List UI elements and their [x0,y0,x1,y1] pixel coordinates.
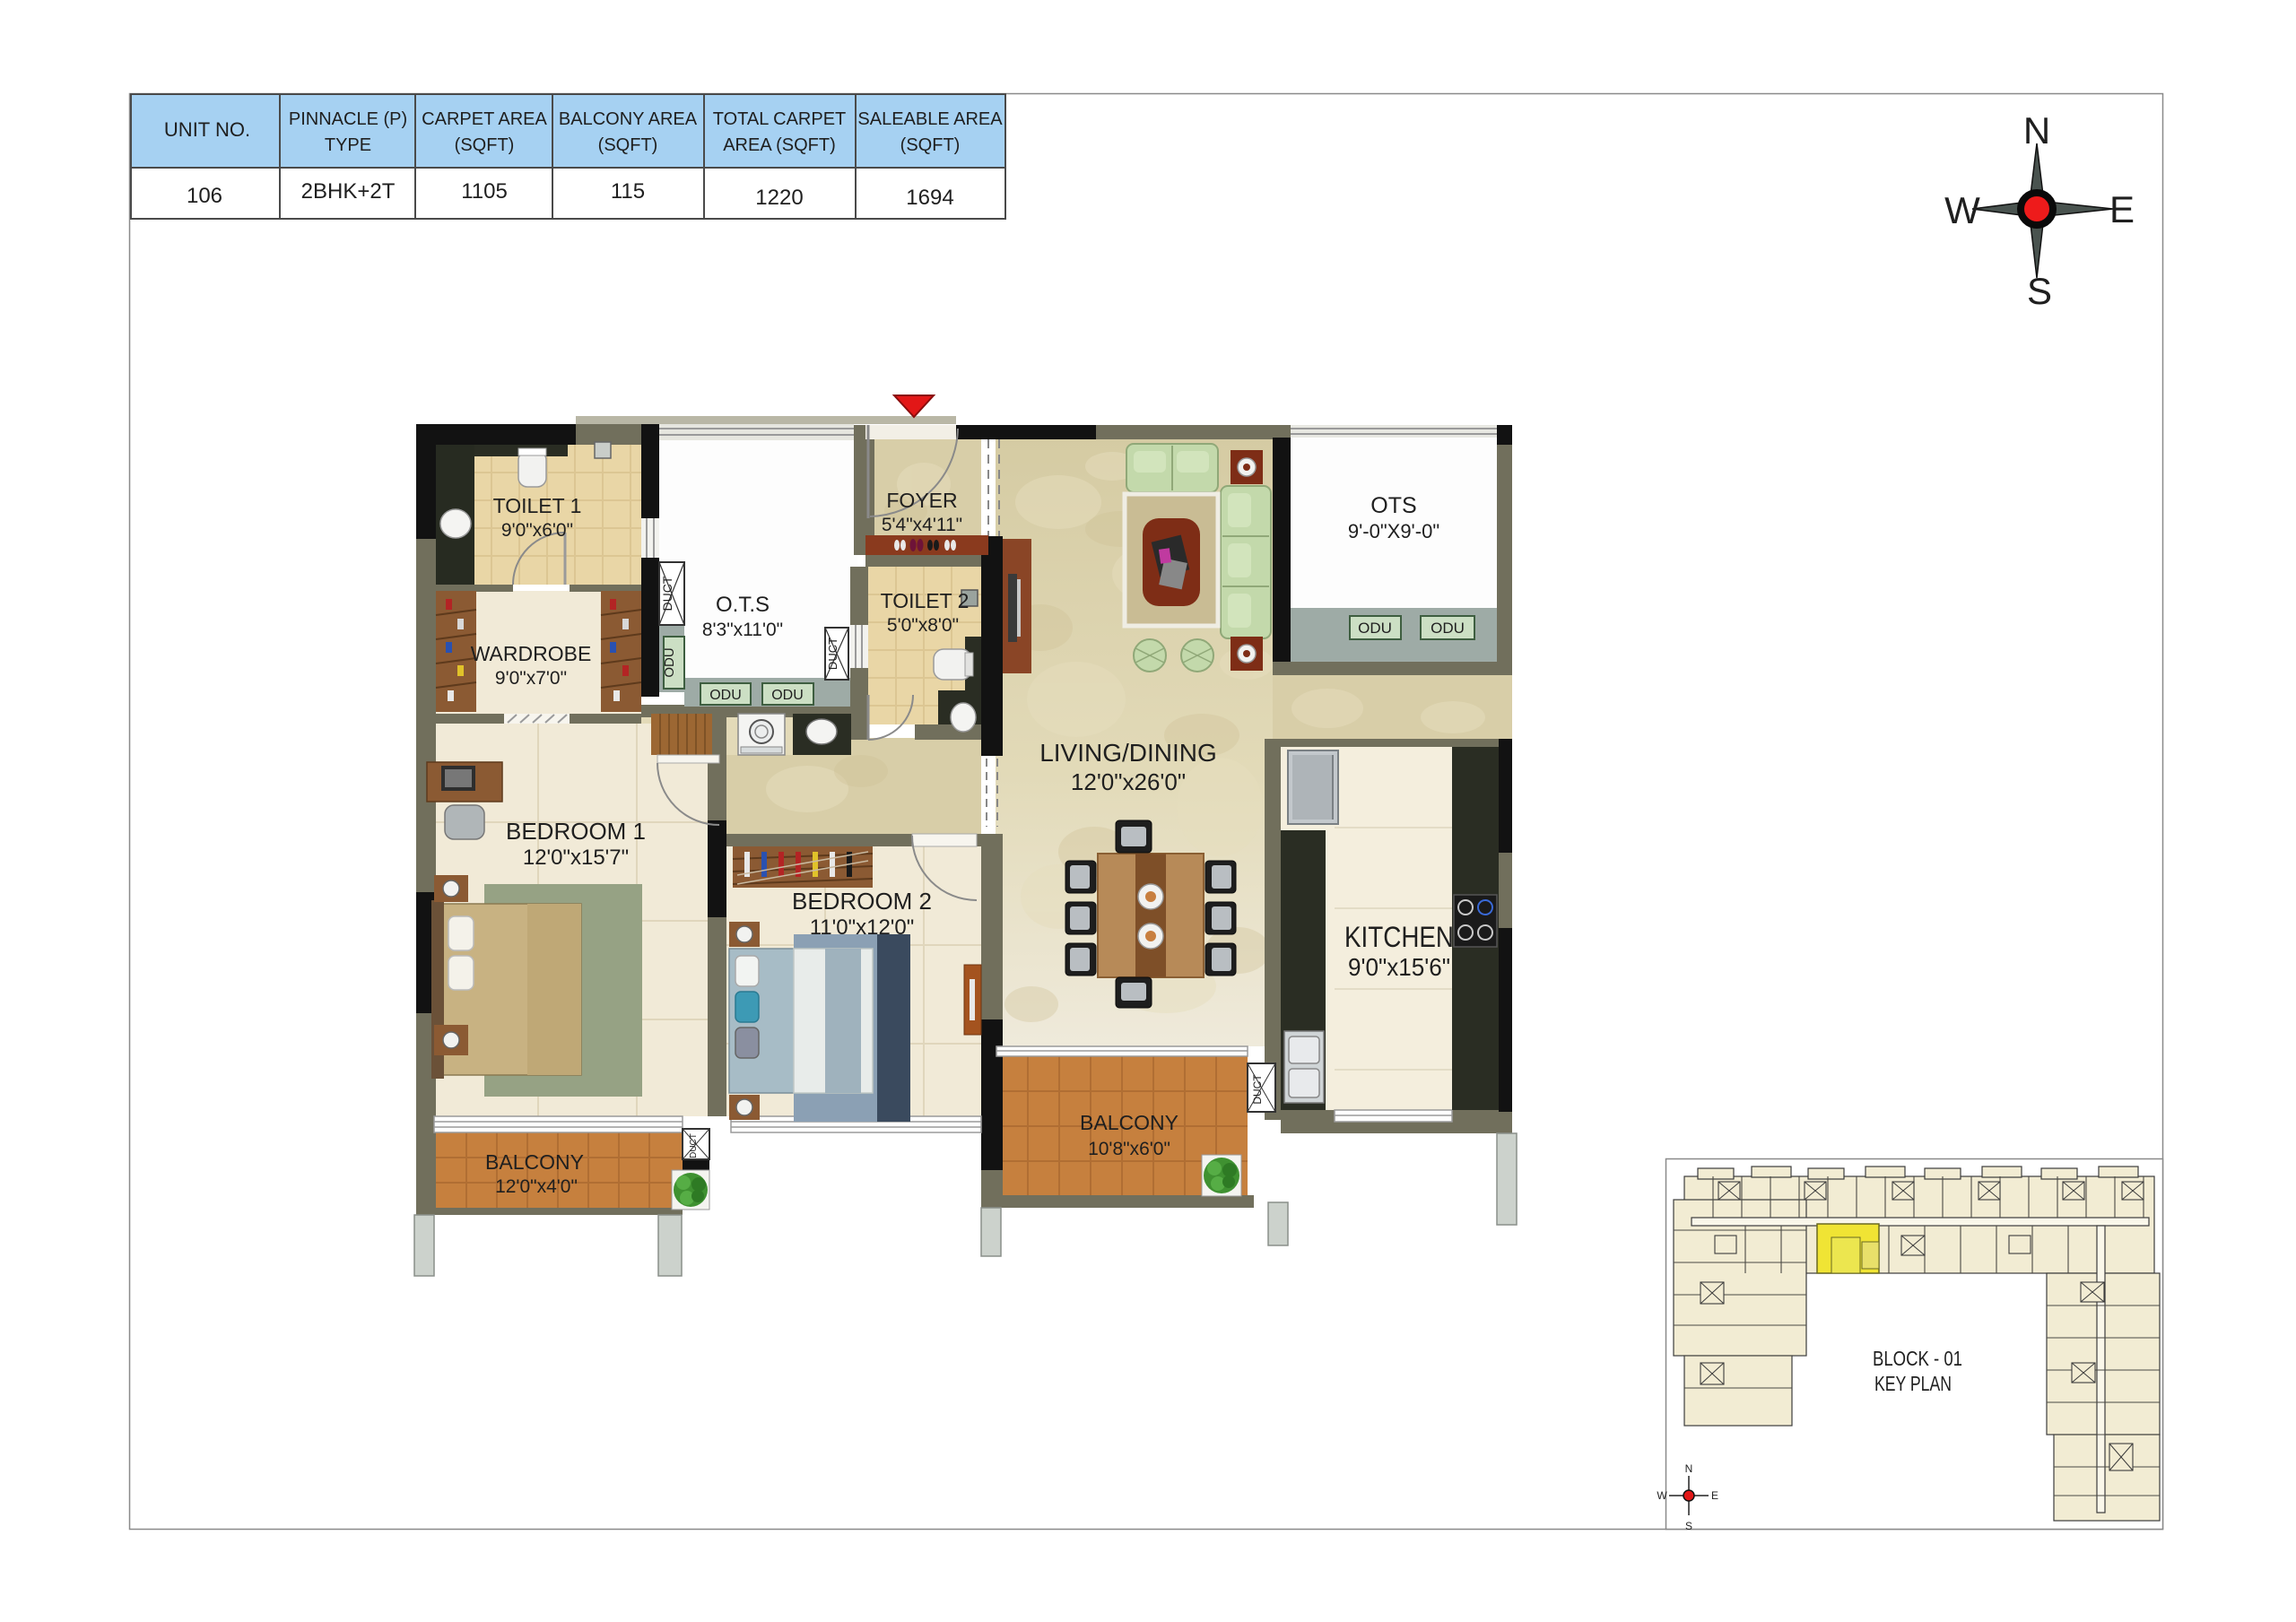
svg-text:S: S [2027,270,2052,312]
svg-text:115: 115 [611,179,645,204]
svg-text:5'4"x4'11": 5'4"x4'11" [882,515,962,535]
svg-text:CARPET AREA: CARPET AREA [422,109,547,129]
svg-text:UNIT NO.: UNIT NO. [164,118,250,141]
svg-text:9'-0"X9'-0": 9'-0"X9'-0" [1348,520,1439,542]
svg-text:1220: 1220 [755,186,803,210]
svg-text:ODU: ODU [1431,620,1465,637]
svg-text:WARDROBE: WARDROBE [471,642,592,665]
svg-text:BALCONY: BALCONY [1080,1111,1178,1134]
svg-text:ODU: ODU [662,647,677,677]
svg-text:5'0"x8'0": 5'0"x8'0" [887,615,959,636]
svg-text:2BHK+2T: 2BHK+2T [301,179,396,204]
svg-text:OTS: OTS [1370,493,1416,518]
svg-text:N: N [1685,1462,1693,1475]
svg-text:LIVING/DINING: LIVING/DINING [1039,739,1217,767]
svg-text:E: E [2109,188,2135,230]
svg-text:AREA (SQFT): AREA (SQFT) [723,135,836,155]
svg-text:DUCT: DUCT [660,576,674,611]
svg-text:BALCONY: BALCONY [485,1150,584,1174]
svg-text:12'0"x15'7": 12'0"x15'7" [523,846,629,870]
svg-text:106: 106 [187,184,222,208]
svg-text:(SQFT): (SQFT) [455,135,515,155]
svg-text:(SQFT): (SQFT) [598,135,658,155]
svg-text:PINNACLE (P): PINNACLE (P) [289,109,407,129]
svg-text:TOILET 2: TOILET 2 [881,589,970,612]
svg-text:TOILET 1: TOILET 1 [493,494,582,517]
svg-text:SALEABLE AREA: SALEABLE AREA [857,109,1003,129]
svg-text:9'0"x6'0": 9'0"x6'0" [501,520,573,541]
svg-text:BEDROOM 2: BEDROOM 2 [792,888,932,915]
svg-text:ODU: ODU [709,688,742,703]
svg-text:DUCT: DUCT [826,638,839,670]
svg-text:1694: 1694 [906,186,953,210]
svg-text:TOTAL CARPET: TOTAL CARPET [713,109,847,129]
svg-text:11'0"x12'0": 11'0"x12'0" [810,915,915,940]
svg-text:O.T.S: O.T.S [716,593,770,617]
svg-text:9'0"x7'0": 9'0"x7'0" [495,668,567,689]
svg-text:S: S [1685,1520,1692,1532]
svg-text:ODU: ODU [1358,620,1392,637]
svg-text:W: W [1944,189,1980,231]
svg-text:TYPE: TYPE [325,135,371,155]
svg-text:12'0"x26'0": 12'0"x26'0" [1071,768,1186,795]
svg-text:DUCT: DUCT [689,1133,699,1158]
svg-text:10'8"x6'0": 10'8"x6'0" [1088,1139,1170,1159]
svg-text:1105: 1105 [461,179,508,204]
svg-text:8'3"x11'0": 8'3"x11'0" [702,620,783,640]
svg-text:KEY PLAN: KEY PLAN [1874,1372,1952,1395]
svg-text:N: N [2023,109,2050,152]
svg-text:9'0"x15'6": 9'0"x15'6" [1348,953,1450,981]
svg-text:KITCHEN: KITCHEN [1344,921,1454,953]
svg-text:(SQFT): (SQFT) [900,135,961,155]
svg-text:12'0"x4'0": 12'0"x4'0" [495,1176,578,1197]
svg-text:W: W [1657,1489,1667,1502]
svg-text:E: E [1711,1489,1718,1502]
svg-text:BALCONY AREA: BALCONY AREA [559,109,698,129]
svg-text:ODU: ODU [771,688,804,703]
svg-text:FOYER: FOYER [886,489,957,512]
svg-text:BLOCK - 01: BLOCK - 01 [1873,1347,1962,1370]
svg-text:DUCT: DUCT [1251,1074,1264,1105]
svg-text:BEDROOM 1: BEDROOM 1 [506,818,646,845]
